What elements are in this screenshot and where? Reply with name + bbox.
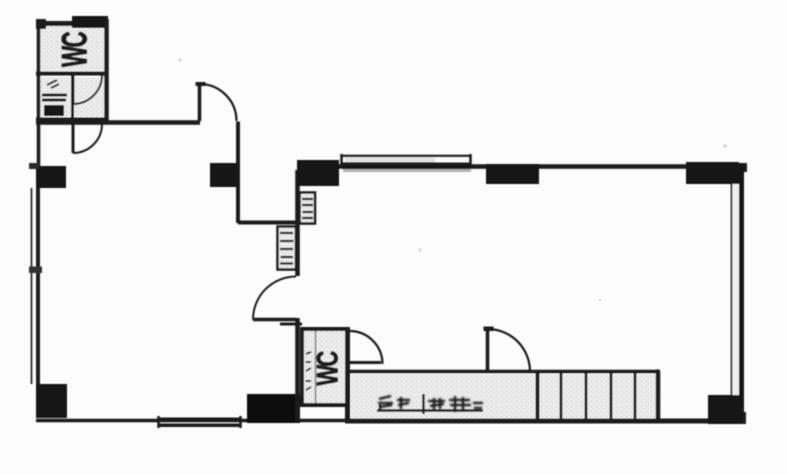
svg-text:WC: WC (55, 32, 94, 67)
svg-text:WC: WC (310, 351, 344, 386)
